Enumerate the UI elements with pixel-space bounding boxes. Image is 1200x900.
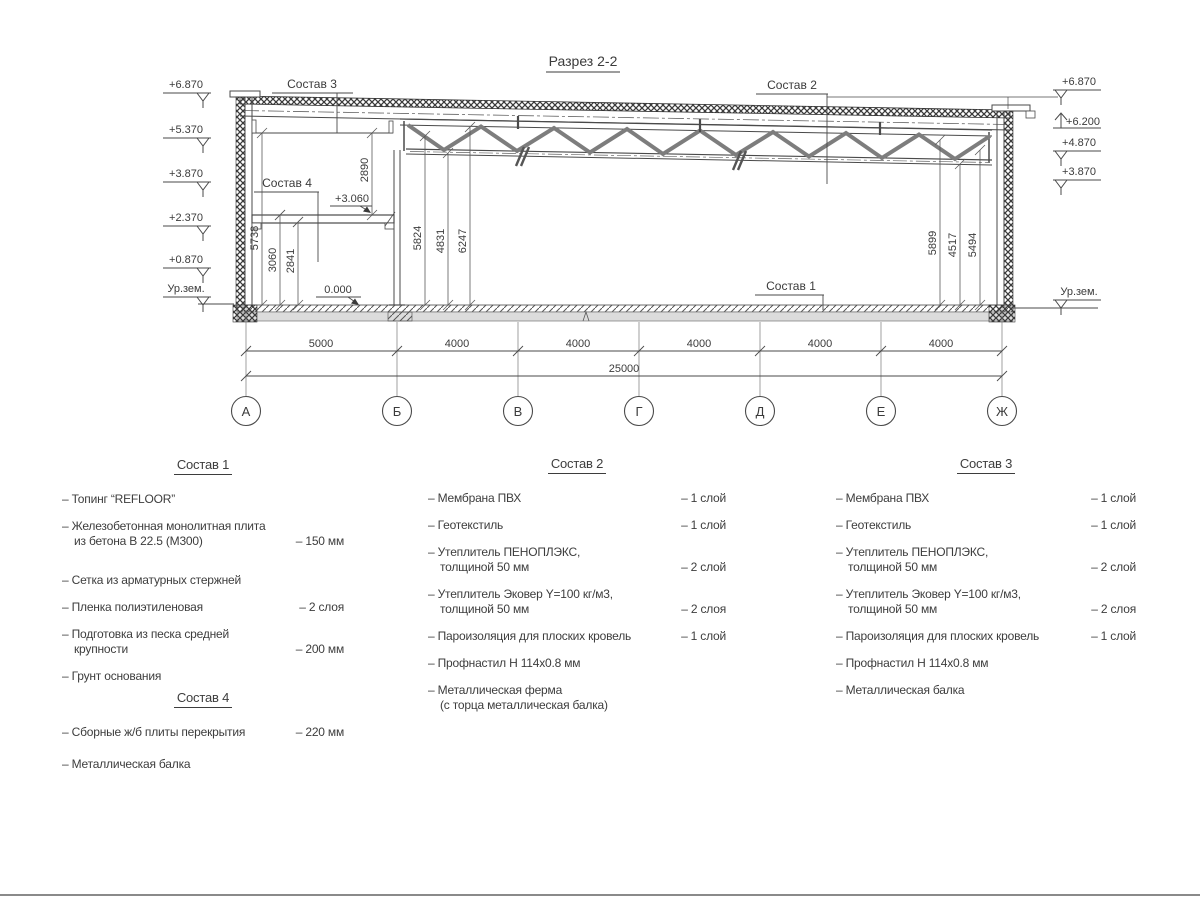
dim-label: 4000 (687, 338, 711, 350)
composition-list-2: Состав 2 – Мембрана ПВХ– 1 слой– Геотекс… (428, 456, 726, 725)
material-item: – Сетка из арматурных стержней (62, 573, 344, 588)
material-item: – Металлическая балка (62, 757, 344, 772)
elevation-label: +6.870 (1062, 76, 1096, 88)
material-name: – Металлическая балка (836, 683, 964, 698)
elevation-label: Ур.зем. (167, 283, 204, 295)
material-item: – Железобетонная монолитная плита из бет… (62, 519, 344, 549)
list-title-text: Состав 3 (957, 456, 1015, 474)
callout-sostav4: Состав 4 (262, 176, 312, 190)
material-value: – 2 слой (675, 560, 726, 575)
material-item: – Металлическая ферма (с торца металличе… (428, 683, 726, 713)
elevation-label: +2.370 (169, 212, 203, 224)
axis-label: Ж (996, 404, 1008, 419)
axis-label: Г (635, 404, 642, 419)
material-item: – Сборные ж/б плиты перекрытия– 220 мм (62, 725, 344, 740)
material-value: – 1 слой (1085, 629, 1136, 644)
list-title-text: Состав 2 (548, 456, 606, 474)
elevation-label: +5.370 (169, 124, 203, 136)
dim-label: 2890 (359, 158, 371, 182)
elevation-label: +3.870 (169, 168, 203, 180)
elevation-label: +6.200 (1066, 116, 1100, 128)
material-name: – Подготовка из песка средней крупности (62, 627, 229, 657)
list-items: – Сборные ж/б плиты перекрытия– 220 мм– … (62, 725, 344, 772)
material-name: – Утеплитель ПЕНОПЛЭКС, толщиной 50 мм (428, 545, 580, 575)
dim-label: 4000 (808, 338, 832, 350)
material-item: – Мембрана ПВХ– 1 слой (836, 491, 1136, 506)
material-name: – Пленка полиэтиленовая (62, 600, 203, 615)
material-value: – 1 слой (1085, 518, 1136, 533)
material-item: – Подготовка из песка средней крупности–… (62, 627, 344, 657)
material-name: – Пароизоляция для плоских кровель (428, 629, 631, 644)
material-item: – Геотекстиль– 1 слой (428, 518, 726, 533)
axis-label: А (242, 404, 251, 419)
list-title-text: Состав 1 (174, 457, 232, 475)
list-title: Состав 2 (428, 456, 726, 471)
elevation-label: +0.870 (169, 254, 203, 266)
right-wall (992, 105, 1035, 307)
total-dim-label: 25000 (609, 363, 640, 375)
material-item: – Утеплитель Эковер Y=100 кг/м3, толщино… (836, 587, 1136, 617)
material-name: – Грунт основания (62, 669, 161, 684)
material-item: – Металлическая балка (836, 683, 1136, 698)
axis-label: В (514, 404, 523, 419)
dim-label: 5000 (309, 338, 333, 350)
dim-label: 2841 (285, 249, 297, 273)
composition-list-4: Состав 4 – Сборные ж/б плиты перекрытия–… (62, 690, 344, 789)
material-value: – 1 слой (675, 629, 726, 644)
material-name: – Мембрана ПВХ (428, 491, 521, 506)
dim-label: 4000 (445, 338, 469, 350)
material-value: – 1 слой (675, 518, 726, 533)
axis-label: Е (877, 404, 886, 419)
material-item: – Утеплитель ПЕНОПЛЭКС, толщиной 50 мм– … (836, 545, 1136, 575)
callout-sostav3: Состав 3 (287, 77, 337, 91)
dim-label: 4000 (929, 338, 953, 350)
list-items: – Топинг “REFLOOR”– Железобетонная монол… (62, 492, 344, 684)
list-title-text: Состав 4 (174, 690, 232, 708)
material-item: – Геотекстиль– 1 слой (836, 518, 1136, 533)
section-title: Разрез 2-2 (549, 53, 618, 69)
dim-label: 5738 (249, 226, 261, 250)
material-item: – Утеплитель ПЕНОПЛЭКС, толщиной 50 мм– … (428, 545, 726, 575)
dim-label: 5824 (412, 226, 424, 250)
elevation-labels-left: +6.870 +5.370 +3.870 +2.370 +0.870 Ур.зе… (167, 79, 204, 295)
material-name: – Сборные ж/б плиты перекрытия (62, 725, 245, 740)
material-name: – Профнастил Н 114х0.8 мм (428, 656, 580, 671)
material-name: – Сетка из арматурных стержней (62, 573, 241, 588)
dim-label: 4831 (435, 229, 447, 253)
title-block-top-border (0, 894, 1200, 896)
material-value: – 1 слой (1085, 491, 1136, 506)
roof (240, 96, 1010, 130)
material-name: – Топинг “REFLOOR” (62, 492, 175, 507)
material-name: – Металлическая ферма (с торца металличе… (428, 683, 608, 713)
material-item: – Пароизоляция для плоских кровель– 1 сл… (428, 629, 726, 644)
dim-label: 3060 (267, 248, 279, 272)
dim-label: 5899 (927, 231, 939, 255)
material-item: – Топинг “REFLOOR” (62, 492, 344, 507)
material-name: – Железобетонная монолитная плита из бет… (62, 519, 265, 549)
elevation-label: +3.870 (1062, 166, 1096, 178)
drawing-sheet: Разрез 2-2 (0, 0, 1200, 900)
roof-truss (400, 116, 992, 170)
roof-beam-left-bay (252, 120, 393, 133)
elevation-label: +4.870 (1062, 137, 1096, 149)
material-name: – Геотекстиль (836, 518, 913, 533)
composition-list-3: Состав 3 – Мембрана ПВХ– 1 слой– Геотекс… (836, 456, 1136, 710)
composition-list-1: Состав 1 – Топинг “REFLOOR”– Железобетон… (62, 457, 344, 696)
elevation-labels-right: +6.870 +6.200 +4.870 +3.870 Ур.зем. (1060, 76, 1100, 298)
axis-bubbles: А Б В Г Д Е Ж (232, 397, 1017, 426)
material-name: – Геотекстиль (428, 518, 505, 533)
material-value: – 200 мм (290, 642, 344, 657)
material-name: – Пароизоляция для плоских кровель (836, 629, 1039, 644)
level-mezzanine: +3.060 (335, 193, 369, 205)
axis-label: Д (756, 404, 765, 419)
material-value: – 2 слой (1085, 560, 1136, 575)
material-value: – 1 слой (675, 491, 726, 506)
elevation-label: +6.870 (169, 79, 203, 91)
drawing-title: Разрез 2-2 (546, 53, 620, 72)
material-value: – 2 слоя (675, 602, 726, 617)
material-item: – Профнастил Н 114х0.8 мм (428, 656, 726, 671)
list-title: Состав 4 (62, 690, 344, 705)
callout-sostav1: Состав 1 (766, 279, 816, 293)
section-drawing: Разрез 2-2 (0, 0, 1200, 446)
material-value: – 220 мм (290, 725, 344, 740)
dim-label: 6247 (457, 229, 469, 253)
material-value: – 2 слоя (293, 600, 344, 615)
list-items: – Мембрана ПВХ– 1 слой– Геотекстиль– 1 с… (836, 491, 1136, 698)
elevation-label: Ур.зем. (1060, 286, 1097, 298)
material-item: – Пароизоляция для плоских кровель– 1 сл… (836, 629, 1136, 644)
material-name: – Мембрана ПВХ (836, 491, 929, 506)
material-item: – Грунт основания (62, 669, 344, 684)
dim-label: 4517 (947, 233, 959, 257)
material-name: – Металлическая балка (62, 757, 190, 772)
material-name: – Утеплитель ПЕНОПЛЭКС, толщиной 50 мм (836, 545, 988, 575)
material-name: – Утеплитель Эковер Y=100 кг/м3, толщино… (836, 587, 1021, 617)
dim-label: 4000 (566, 338, 590, 350)
dim-label: 5494 (967, 233, 979, 257)
list-title: Состав 3 (836, 456, 1136, 471)
material-name: – Профнастил Н 114х0.8 мм (836, 656, 988, 671)
material-item: – Утеплитель Эковер Y=100 кг/м3, толщино… (428, 587, 726, 617)
floor-slab (198, 304, 1098, 322)
mezzanine-slab (252, 210, 395, 229)
material-item: – Мембрана ПВХ– 1 слой (428, 491, 726, 506)
list-title: Состав 1 (62, 457, 344, 472)
horizontal-dimension-labels: 5000 4000 4000 4000 4000 4000 25000 (309, 338, 953, 375)
callout-sostav2: Состав 2 (767, 78, 817, 92)
level-floor: 0.000 (324, 284, 352, 296)
axis-label: Б (393, 404, 402, 419)
material-item: – Профнастил Н 114х0.8 мм (836, 656, 1136, 671)
material-value: – 150 мм (290, 534, 344, 549)
material-name: – Утеплитель Эковер Y=100 кг/м3, толщино… (428, 587, 613, 617)
material-item: – Пленка полиэтиленовая– 2 слоя (62, 600, 344, 615)
list-items: – Мембрана ПВХ– 1 слой– Геотекстиль– 1 с… (428, 491, 726, 713)
material-value: – 2 слоя (1085, 602, 1136, 617)
